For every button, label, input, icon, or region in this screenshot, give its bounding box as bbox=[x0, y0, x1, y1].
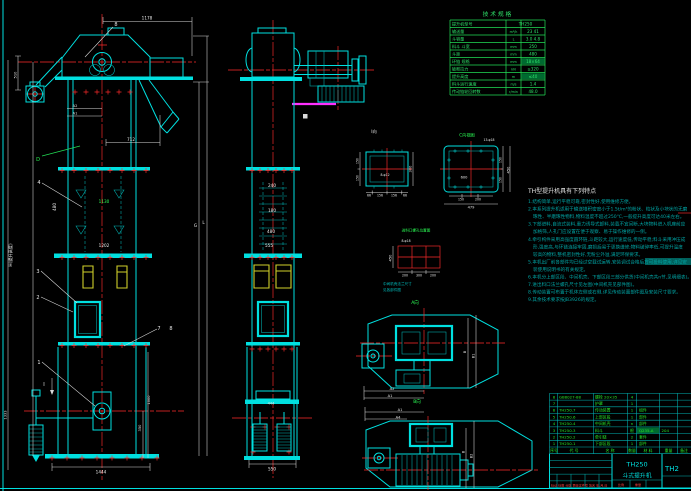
detail-c-r2: 150 bbox=[499, 177, 503, 183]
spec-unit: m³/h bbox=[510, 30, 518, 34]
bom-cell: 牵引链 bbox=[595, 435, 607, 440]
bom-cell: GB8027-88 bbox=[559, 394, 581, 399]
view-a-b: B bbox=[463, 350, 467, 353]
feature-line: 琢性、半磨琢性物料,物料温度不超过250℃,一般提升高度可达40米左右。 bbox=[533, 213, 684, 220]
spec-value: 23 41 bbox=[527, 29, 539, 34]
spec-label: 斗容量 bbox=[452, 36, 464, 42]
dim-side-top: 240 bbox=[268, 183, 276, 188]
bom-cell: TH250.3 bbox=[558, 428, 576, 433]
section-ii-marker bbox=[303, 114, 308, 119]
bom-header-cell: 材 料 bbox=[643, 448, 652, 453]
inlet-left: 450 bbox=[389, 254, 393, 262]
titleblock-drawing-no: TH2 bbox=[664, 465, 679, 473]
detail-view-c: C向视图 13-φ18 600 150 150 450 150 200 479 bbox=[440, 132, 511, 210]
inlet-holes: 8-φ18 bbox=[401, 239, 410, 243]
view-b-top: B向 A1 A4 B B2 bbox=[362, 398, 540, 490]
dim-chute-offset: 712 bbox=[127, 137, 135, 142]
titleblock-weight-label: 重量 bbox=[635, 482, 641, 487]
part-label-3: 3 bbox=[36, 269, 39, 275]
detail-c-rtotal: 450 bbox=[507, 166, 511, 174]
dim-a2: A2 bbox=[73, 104, 78, 108]
bom-cell: 1 bbox=[631, 401, 634, 406]
bom-cell: 部件 bbox=[639, 441, 647, 446]
bom-cell: 螺栓 20×35 bbox=[595, 394, 618, 399]
spec-label: 提升高度 bbox=[452, 73, 468, 79]
spec-label: 料斗 斗宽 bbox=[452, 43, 470, 49]
part-label-1: 1 bbox=[37, 360, 40, 366]
inlet-b1: 200 bbox=[402, 274, 408, 278]
bom-cell: TH250.7 bbox=[558, 408, 576, 413]
feature-line: 加格筛,人孔门应设置在便于观察、易于操作维修的一侧。 bbox=[533, 228, 649, 235]
spec-label: 破断拉力 bbox=[452, 66, 468, 72]
spec-unit: r/min bbox=[509, 90, 518, 94]
bom-cell: 套件 bbox=[639, 435, 647, 440]
bom-header-cell: 序号 bbox=[550, 448, 558, 453]
bom-cell: 部件 bbox=[639, 414, 647, 419]
view-b-a4: A4 bbox=[396, 416, 401, 420]
spec-unit: m bbox=[512, 75, 515, 79]
spec-table: 技 术 规 格 提升机型号 TH250 输送量 m³/h 23 41 斗容量 L… bbox=[450, 10, 545, 95]
dim-lift-height: H(提升高度) bbox=[7, 243, 14, 267]
datum-label-d: D bbox=[36, 157, 40, 163]
inlet-note-2: 见各部件图 bbox=[383, 287, 401, 292]
detail-c-holes: 13-φ18 bbox=[483, 138, 494, 142]
bom-cell: 料斗 bbox=[595, 428, 603, 433]
view-a-a1: A1 bbox=[388, 394, 393, 398]
bom-cell: 3 bbox=[553, 428, 556, 433]
spec-label: 斗距 bbox=[452, 52, 460, 57]
view-a-top: A向 A2 A1 B B1 bbox=[356, 299, 505, 400]
bom-cell: 204 bbox=[662, 428, 670, 433]
feature-line: 8.传动装置可布置于机体左侧或右侧,详见传动装置部件图及安装尺寸要求。 bbox=[528, 289, 681, 296]
view-b-b: B bbox=[462, 450, 466, 453]
detail-view-i: I向 8-φ12 300 150 150 66 156 156 66 bbox=[356, 128, 414, 198]
dim-side-boot: 444 bbox=[268, 401, 276, 405]
spec-value: 1.4 bbox=[530, 82, 537, 87]
dim-head-left: 510 bbox=[14, 71, 18, 79]
dim-mid-pitch: 480 bbox=[52, 203, 57, 211]
part-label-4: 4 bbox=[37, 180, 40, 186]
bom-cell: 1 bbox=[631, 408, 634, 413]
spec-unit: L bbox=[513, 38, 515, 42]
titleblock-model: TH250 bbox=[625, 461, 647, 469]
part-label-2: 2 bbox=[36, 295, 39, 301]
bom-cell: 上部区段 bbox=[595, 414, 611, 419]
bom-cell: 5 bbox=[553, 414, 556, 419]
titleblock-rev-row: 标记 处数 分区 更改文件号 签名 年.月.日 bbox=[551, 482, 607, 487]
dim-l: L bbox=[202, 220, 205, 225]
spec-unit: mm bbox=[510, 53, 516, 57]
spec-unit: mm bbox=[510, 60, 516, 64]
bom-cell: 护罩 bbox=[595, 401, 603, 406]
bom-cell: 1 bbox=[553, 441, 556, 446]
takeup-spring bbox=[29, 390, 93, 462]
feature-line: 4.牵引构件采用高强度圆环链,斗距较大,运行速度低,传动平稳;料斗采用冲压成 bbox=[528, 236, 686, 243]
detail-i-b1: 66 bbox=[367, 194, 371, 198]
bom-cell: 8 bbox=[553, 394, 556, 399]
titleblock-product: 斗式提升机 bbox=[623, 472, 652, 480]
dim-boot-inner: 350 bbox=[138, 424, 142, 432]
dim-side-lower: 555 bbox=[265, 243, 273, 248]
bom-cell: 根 bbox=[630, 428, 634, 433]
spec-label: 传动链轮回转数 bbox=[452, 88, 481, 94]
front-view: 1178 712 A2 A1 510 H(提升高度) 1333 480 1130… bbox=[4, 14, 210, 480]
part-label-7: 7 bbox=[157, 326, 160, 332]
detail-c-r1: 150 bbox=[499, 157, 503, 163]
bom-header-cell: 备注 bbox=[680, 448, 688, 453]
spec-value: 250 bbox=[529, 44, 537, 49]
dim-a1: A1 bbox=[73, 112, 78, 116]
detail-c-title: C向视图 bbox=[459, 132, 475, 139]
parts-list: 8 GB8027-88 螺栓 20×35 4 7 护罩 1 6 TH250.7 … bbox=[550, 393, 691, 453]
view-a-a2: A2 bbox=[390, 387, 395, 391]
feature-line: 5.本机出厂前各部件均已经过空载试运转,安装调试合格后方可投料使用,详见安 bbox=[528, 258, 687, 265]
bom-cell: 4 bbox=[553, 421, 556, 426]
spec-table-title: 技 术 规 格 bbox=[483, 10, 512, 18]
feature-line: 装使用说明书的有关规定。 bbox=[533, 266, 588, 273]
feature-line: 3.下部进料,自流式装料,重力诱导式卸料,装载不宜间断,大块物料进入机座前应 bbox=[528, 221, 686, 228]
spec-value: ≤40 bbox=[529, 74, 538, 79]
spec-value: TH250 bbox=[518, 22, 533, 27]
spec-unit: mm bbox=[510, 45, 516, 49]
detail-i-holes: 8-φ12 bbox=[380, 173, 389, 177]
detail-i-title: I向 bbox=[371, 128, 376, 134]
bom-cell: TH250.2 bbox=[558, 435, 576, 440]
spec-label: 环链 规格 bbox=[452, 58, 470, 64]
spec-unit: kN bbox=[511, 68, 516, 72]
dim-mid-green: 1130 bbox=[99, 199, 110, 204]
bom-header-cell: 名 称 bbox=[605, 448, 614, 453]
bom-cell: TH250.1 bbox=[558, 441, 576, 446]
inlet-b3: 200 bbox=[430, 274, 436, 278]
feature-line: 9.其余技术要求按JB3926的规定。 bbox=[528, 296, 599, 303]
bom-cell: TH250.6 bbox=[558, 414, 576, 419]
cad-drawing-sheet: 1178 712 A2 A1 510 H(提升高度) 1333 480 1130… bbox=[0, 0, 691, 491]
part-label-8b: 8 bbox=[169, 326, 172, 332]
detail-i-b4: 66 bbox=[403, 194, 407, 198]
detail-c-btotal: 479 bbox=[468, 206, 476, 210]
inlet-flange-detail: 进料口螺孔位置图 8-φ18 450 200 300 200 中间机壳法兰尺寸 … bbox=[383, 228, 440, 293]
inlet-title: 进料口螺孔位置图 bbox=[402, 228, 431, 233]
dim-boot-left: 1333 bbox=[4, 410, 8, 419]
features-notes: TH型提升机具有下列特点 1.结构简单,运行平稳可靠,密封性好,使用维修方便。 … bbox=[527, 187, 691, 303]
bom-cell: 4 bbox=[631, 394, 634, 399]
bom-cell: 下部区段 bbox=[595, 441, 611, 446]
feature-line: 较高的物料,整机密封性好,无粉尘外溢,满足环保要求。 bbox=[533, 251, 643, 258]
side-view: 240 180 480 555 444 550 bbox=[228, 20, 374, 478]
bom-cell: 传动装置 bbox=[595, 408, 611, 413]
detail-i-right: 300 bbox=[409, 165, 413, 173]
bom-header-cell: 数量 bbox=[628, 448, 636, 453]
view-b-a1: A1 bbox=[398, 408, 403, 412]
title-block: TH250 斗式提升机 TH2 标记 处数 分区 更改文件号 签名 年.月.日 … bbox=[550, 454, 691, 488]
inlet-note-1: 中间机壳法兰尺寸 bbox=[383, 281, 412, 286]
bom-cell: 1 bbox=[631, 441, 634, 446]
dim-lower-pitch: 1202 bbox=[99, 243, 110, 248]
spec-value: 48.0 bbox=[528, 89, 538, 94]
bom-cell: TH250.4 bbox=[558, 421, 576, 426]
bom-cell: 组件 bbox=[639, 408, 647, 413]
bom-cell: 7 bbox=[553, 401, 556, 406]
dim-g: G bbox=[194, 223, 197, 228]
dim-base-width: 1444 bbox=[96, 470, 107, 475]
detail-i-left1: 150 bbox=[356, 158, 360, 164]
spec-label: 输送量 bbox=[452, 28, 464, 34]
bom-cell: 6 bbox=[553, 408, 556, 413]
view-b-b2: B2 bbox=[470, 454, 474, 459]
spec-value: 3.0 4.8 bbox=[526, 37, 541, 42]
inlet-b2: 300 bbox=[416, 274, 422, 278]
bom-cell: 1 bbox=[631, 414, 634, 419]
spec-label: 料斗运行速度 bbox=[452, 81, 477, 87]
spec-label: 提升机型号 bbox=[452, 21, 472, 27]
dim-side-pitch: 480 bbox=[267, 229, 275, 234]
feature-line: 1.结构简单,运行平稳可靠,密封性好,使用维修方便。 bbox=[528, 198, 633, 205]
bom-header-cell: 重量 bbox=[665, 448, 673, 453]
detail-i-b2: 156 bbox=[377, 194, 383, 198]
view-a-label: A向 bbox=[411, 299, 419, 306]
dim-top-width: 1178 bbox=[142, 16, 153, 21]
spec-value: ≥320 bbox=[527, 67, 539, 72]
view-b-label: B向 bbox=[413, 398, 421, 405]
part-label-8: 8 bbox=[114, 22, 117, 28]
detail-i-left2: 150 bbox=[356, 175, 360, 181]
spec-value: 480 bbox=[529, 52, 537, 57]
dim-side-mid: 180 bbox=[268, 208, 276, 213]
view-a-b1: B1 bbox=[472, 354, 476, 359]
bucket-side bbox=[254, 265, 291, 288]
bom-cell: 2 bbox=[553, 435, 556, 440]
feature-line: 6.本机分上部区段、中间机壳、下部区段三部分供货(中间机壳共n节,见明细表)。 bbox=[528, 274, 691, 281]
dim-side-base: 550 bbox=[268, 467, 276, 472]
detail-c-b2: 200 bbox=[475, 198, 481, 202]
feature-line: 7.进出料口法兰螺孔尺寸见左图(中间机壳见部件图)。 bbox=[528, 281, 637, 288]
detail-c-b1: 150 bbox=[458, 198, 464, 202]
bom-cell: 2 bbox=[631, 435, 634, 440]
feature-line: 形,强度高,与环链连接牢固,磨损后易于更换维修;物料破碎率低,可提升温度 bbox=[533, 243, 683, 250]
dim-boot-height: 1000 bbox=[147, 395, 151, 405]
bucket-front bbox=[83, 266, 127, 288]
features-title: TH型提升机具有下列特点 bbox=[527, 187, 596, 195]
bom-header-cell: 代 号 bbox=[569, 448, 578, 453]
bom-cell: n bbox=[631, 421, 634, 426]
detail-i-b3: 156 bbox=[391, 194, 397, 198]
bom-cell: 部件 bbox=[639, 421, 647, 426]
detail-c-inner: 600 bbox=[461, 176, 469, 180]
titleblock-scale-label: 比例 bbox=[618, 482, 624, 487]
spec-unit: m/s bbox=[510, 83, 516, 87]
bom-cell: 中间机壳 bbox=[595, 421, 611, 426]
motor-side bbox=[318, 86, 364, 102]
feature-line: 2.本系列提升机适用于输送堆积密度小于1.5t/m³的粉状、粒状及小块状的无磨 bbox=[528, 206, 688, 213]
section-label-i: I bbox=[43, 382, 44, 388]
bom-cell: Q235-A bbox=[639, 428, 654, 433]
spec-value: 18×64 bbox=[526, 59, 540, 64]
